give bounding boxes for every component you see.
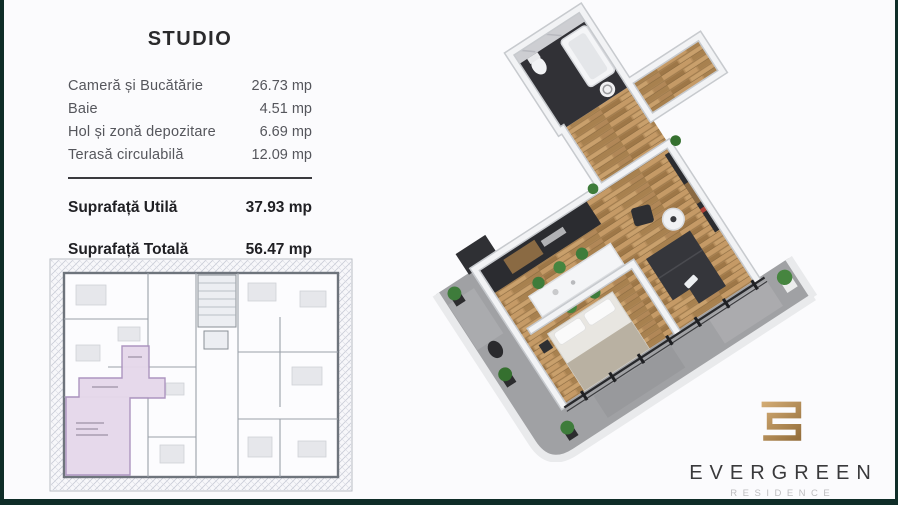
building-floorplan-2d bbox=[48, 257, 354, 493]
area-row-label: Terasă circulabilă bbox=[68, 144, 184, 167]
area-row-value: 6.69 mp bbox=[260, 121, 312, 144]
area-row-value: 4.51 mp bbox=[260, 98, 312, 121]
area-row: Cameră și Bucătărie 26.73 mp bbox=[68, 75, 312, 98]
apartment-render-3d bbox=[402, 0, 898, 462]
area-row: Hol și zonă depozitare 6.69 mp bbox=[68, 121, 312, 144]
area-row-label: Baie bbox=[68, 98, 98, 121]
area-row-label: Cameră și Bucătărie bbox=[68, 75, 203, 98]
evergreen-logo-icon bbox=[756, 398, 804, 454]
total-label: Suprafață Utilă bbox=[68, 199, 177, 217]
unit-title: STUDIO bbox=[68, 28, 312, 51]
area-row: Terasă circulabilă 12.09 mp bbox=[68, 144, 312, 167]
total-value: 37.93 mp bbox=[246, 199, 312, 217]
totals-divider bbox=[68, 177, 312, 179]
render-scene bbox=[402, 0, 853, 462]
area-row-value: 26.73 mp bbox=[252, 75, 312, 98]
presentation-slide: STUDIO Cameră și Bucătărie 26.73 mp Baie… bbox=[0, 0, 898, 505]
total-row-usable: Suprafață Utilă 37.93 mp bbox=[68, 199, 312, 217]
brand-subtitle: RESIDENCE bbox=[725, 488, 835, 499]
area-row-value: 12.09 mp bbox=[252, 144, 312, 167]
brand-name: EVERGREEN bbox=[682, 462, 878, 485]
area-row-label: Hol și zonă depozitare bbox=[68, 121, 216, 144]
unit-spec-card: STUDIO Cameră și Bucătărie 26.73 mp Baie… bbox=[68, 28, 312, 259]
brand-block: EVERGREEN RESIDENCE bbox=[680, 398, 880, 499]
area-row: Baie 4.51 mp bbox=[68, 98, 312, 121]
